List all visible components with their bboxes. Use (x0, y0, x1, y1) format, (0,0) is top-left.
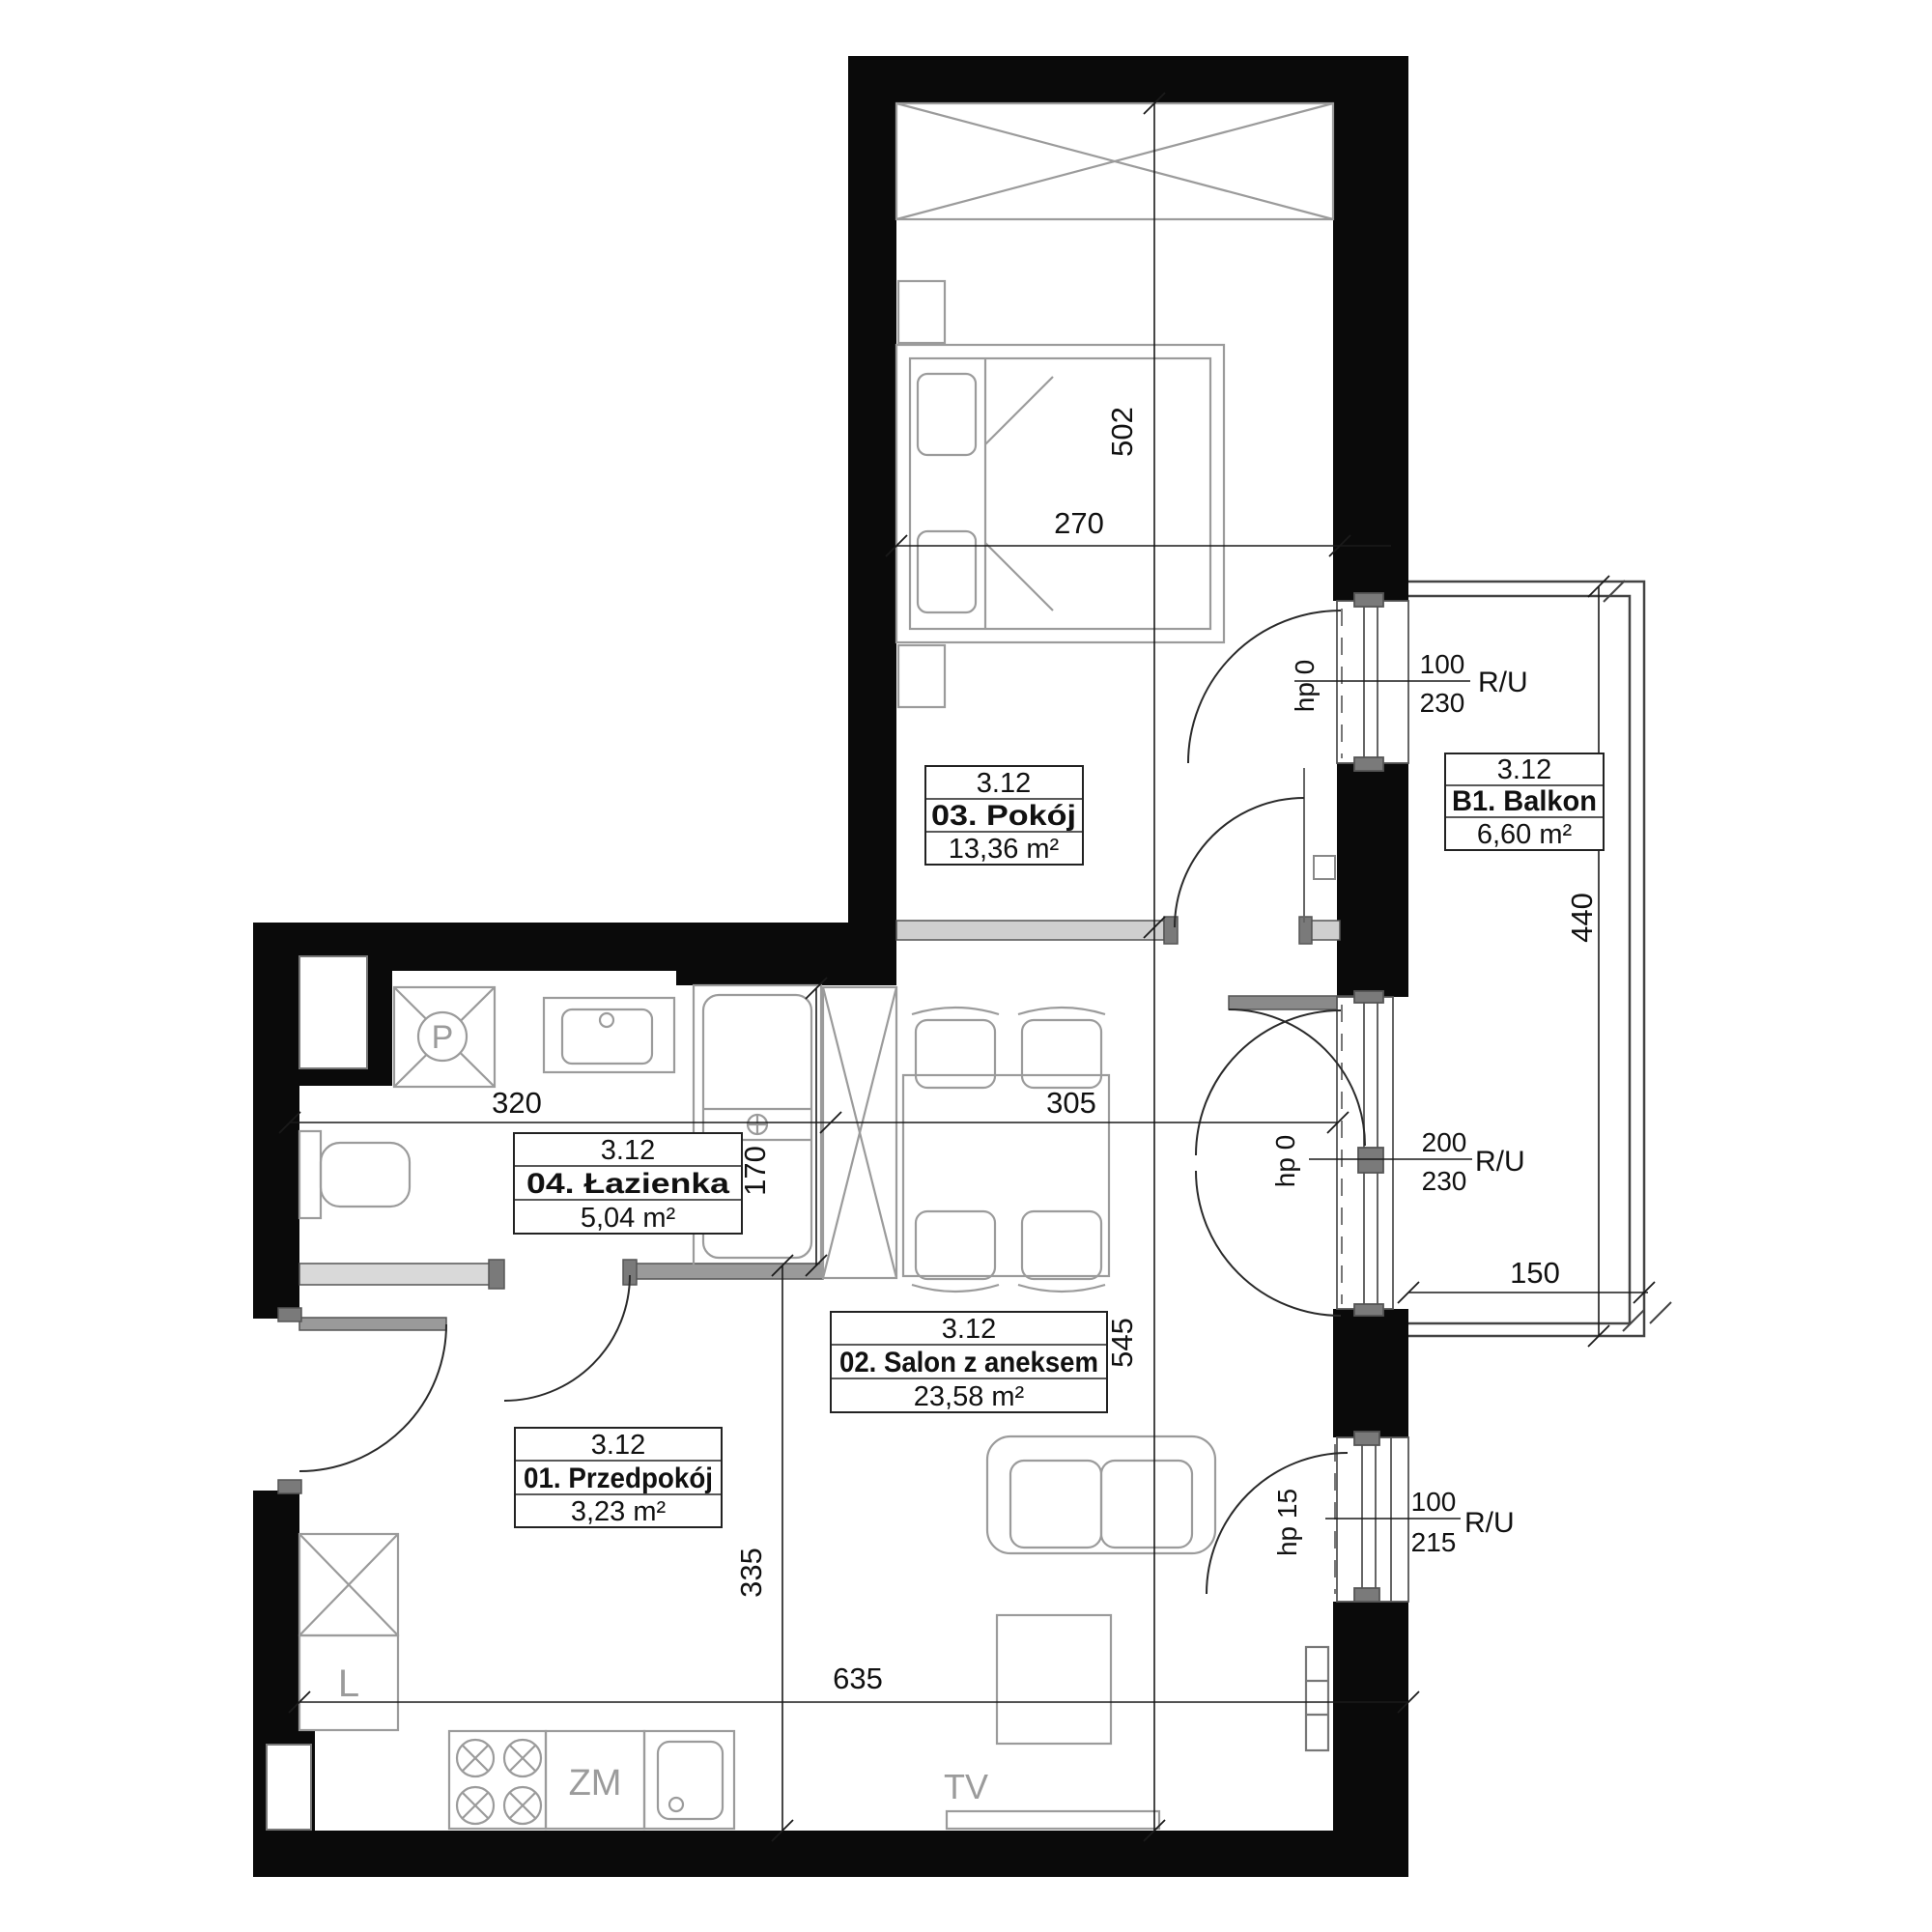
toilet (299, 1131, 410, 1218)
dining-chairs (912, 1008, 1105, 1292)
exterior-walls (253, 56, 1408, 1877)
win-top-type: R/U (1478, 667, 1528, 698)
svg-text:3.12: 3.12 (601, 1135, 655, 1166)
bedroom-wardrobe (896, 103, 1333, 219)
window-top-100-230 (1337, 593, 1408, 771)
svg-text:3.12: 3.12 (1497, 754, 1551, 785)
window-middle-200-230 (1337, 991, 1393, 1316)
dim-balkon-depth: 440 (1565, 893, 1599, 943)
svg-text:B1. Balkon: B1. Balkon (1452, 785, 1597, 817)
label-pokoj: 3.12 03. Pokój 13,36 m² (925, 766, 1083, 865)
pillow (918, 531, 976, 612)
nightstand (898, 281, 945, 343)
svg-text:04. Łazienka: 04. Łazienka (526, 1168, 729, 1200)
win-mid-type: R/U (1475, 1146, 1525, 1178)
dim-przedpokoj-depth: 335 (734, 1548, 768, 1598)
partition-walls (278, 917, 1380, 1493)
win-top-sill: hp 0 (1290, 660, 1320, 713)
dim-pokoj-depth: 502 (1105, 407, 1139, 457)
svg-text:23,58 m²: 23,58 m² (914, 1381, 1025, 1412)
bath-wardrobe (823, 987, 896, 1278)
dim-lazienka-width: 320 (492, 1086, 542, 1120)
entrance-door-leaf (299, 1318, 446, 1330)
hob (449, 1731, 546, 1829)
balcony-window-lower-arc (1196, 1171, 1341, 1316)
pillow (918, 374, 976, 455)
door-arcs (299, 611, 1365, 1594)
win-bot-height: 215 (1411, 1527, 1457, 1557)
fridge-label: L (338, 1662, 359, 1705)
partition-bath (635, 1264, 823, 1279)
win-bot-sill: hp 15 (1272, 1489, 1302, 1556)
dim-salon-depth: 545 (1105, 1318, 1139, 1368)
entrance-door-arc (299, 1324, 446, 1471)
svg-text:01. Przedpokój: 01. Przedpokój (524, 1463, 713, 1494)
svg-text:5,04 m²: 5,04 m² (581, 1203, 676, 1234)
svg-text:3.12: 3.12 (942, 1314, 996, 1345)
window-bottom-100-215 (1337, 1432, 1408, 1602)
annotation-window-middle: 200 230 R/U hp 0 (1270, 1127, 1525, 1196)
svg-text:3.12: 3.12 (591, 1430, 645, 1461)
svg-text:13,36 m²: 13,36 m² (949, 834, 1060, 865)
svg-text:03. Pokój: 03. Pokój (931, 800, 1076, 832)
win-mid-height: 230 (1422, 1166, 1467, 1196)
coffee-table (997, 1615, 1111, 1744)
bathroom-door-arc (504, 1275, 630, 1401)
win-bot-width: 100 (1411, 1487, 1457, 1517)
svg-text:3,23 m²: 3,23 m² (571, 1496, 667, 1527)
win-mid-sill: hp 0 (1270, 1135, 1300, 1188)
sofa (987, 1436, 1215, 1553)
shaft-niche (299, 956, 367, 1068)
floor-plan: P L ZM TV 270 502 545 320 (0, 0, 1932, 1932)
hall-wardrobe (299, 1534, 398, 1635)
label-balkon: 3.12 B1. Balkon 6,60 m² (1445, 753, 1604, 850)
tv-bench (947, 1811, 1159, 1829)
bed (896, 345, 1224, 642)
kitchen-sink (644, 1731, 734, 1829)
win-mid-width: 200 (1422, 1127, 1467, 1157)
svg-text:02. Salon z aneksem: 02. Salon z aneksem (839, 1347, 1098, 1378)
label-lazienka: 3.12 04. Łazienka 5,04 m² (514, 1133, 742, 1234)
win-top-height: 230 (1420, 688, 1465, 718)
shower-label: P (432, 1019, 454, 1056)
dishwasher-label: ZM (569, 1763, 622, 1804)
dim-bottom-width: 635 (833, 1662, 883, 1695)
washbasin (544, 998, 674, 1072)
win-top-width: 100 (1420, 649, 1465, 679)
floor-plan-svg: P L ZM TV 270 502 545 320 (0, 0, 1932, 1932)
bath-pocket-door (299, 1264, 491, 1285)
dim-salon-width: 305 (1046, 1086, 1096, 1120)
svg-text:6,60 m²: 6,60 m² (1477, 819, 1573, 850)
windows (1337, 593, 1408, 1602)
label-salon: 3.12 02. Salon z aneksem 23,58 m² (831, 1312, 1107, 1412)
tv-label: TV (944, 1767, 988, 1806)
dim-balkon-width: 150 (1510, 1256, 1560, 1290)
win-bot-type: R/U (1464, 1507, 1515, 1539)
wall-box (1314, 856, 1335, 879)
label-przedpokoj: 3.12 01. Przedpokój 3,23 m² (515, 1428, 722, 1527)
partition-bedroom (896, 921, 1164, 940)
dim-bathtub: 170 (738, 1146, 772, 1196)
balcony-window-upper-arc (1196, 1010, 1341, 1155)
svg-text:3.12: 3.12 (977, 768, 1031, 799)
nightstand (898, 645, 945, 707)
radiator (1306, 1647, 1328, 1750)
corner-niche (267, 1745, 311, 1830)
bedroom-door-arc (1175, 798, 1304, 927)
dim-pokoj-width: 270 (1054, 506, 1104, 540)
